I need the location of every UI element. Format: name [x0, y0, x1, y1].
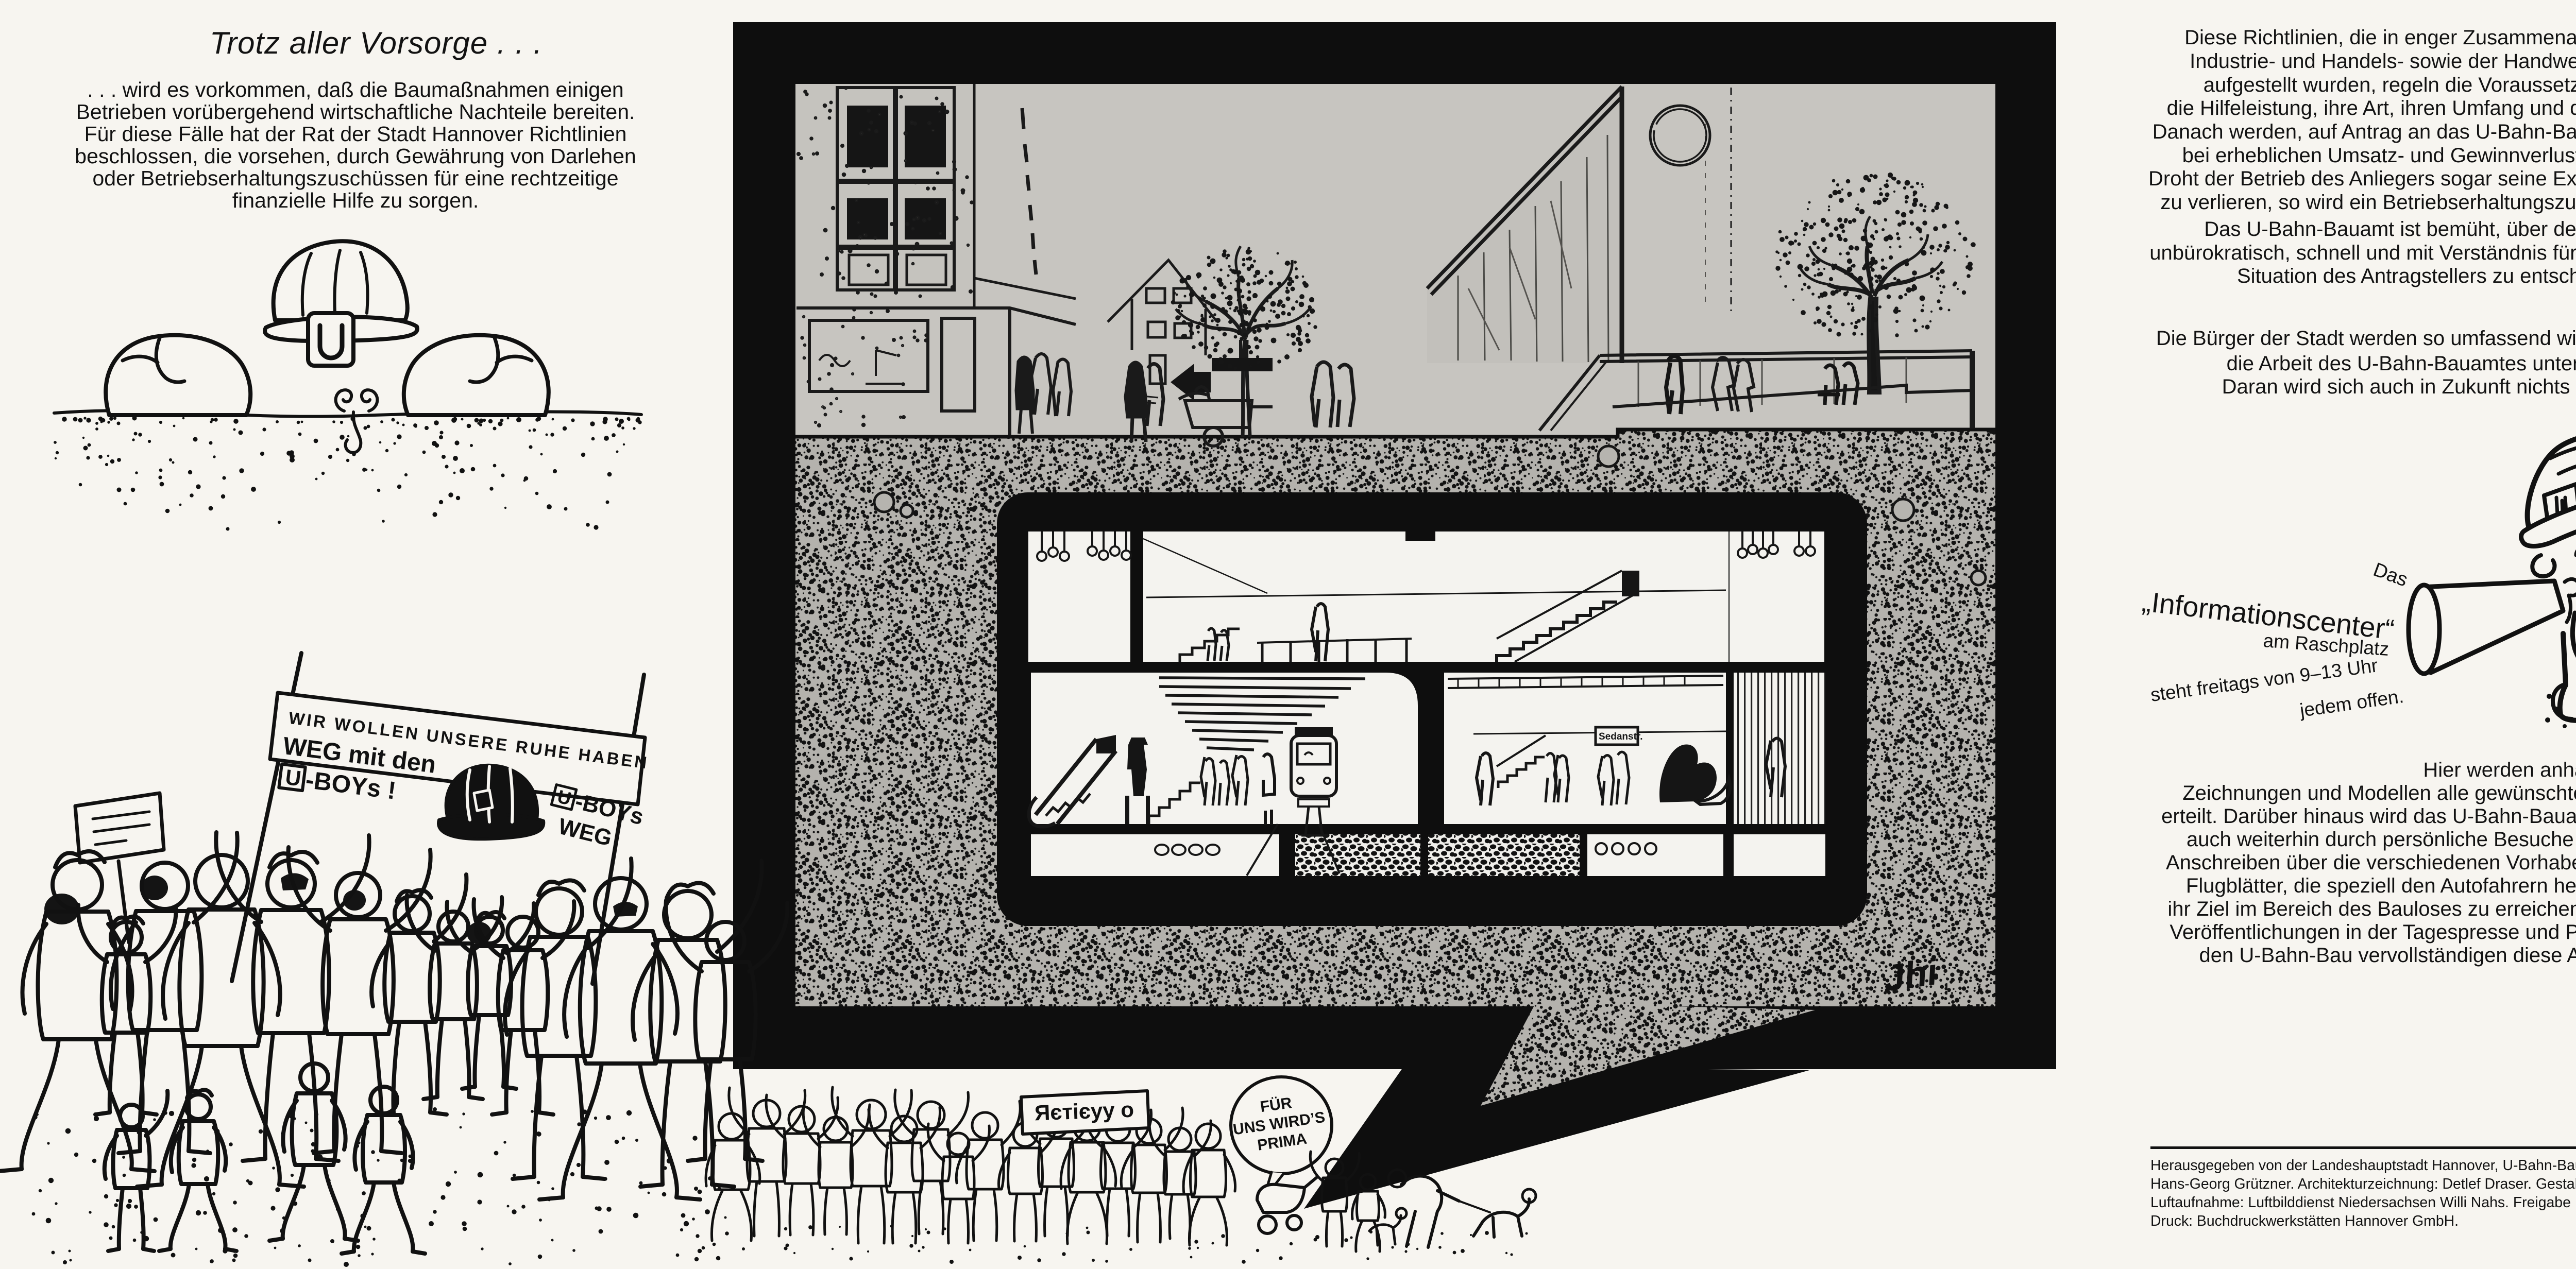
svg-text:erteilt. Darüber hinaus wird d: erteilt. Darüber hinaus wird das U-Bahn-…	[2161, 805, 2576, 828]
svg-text:Betrieben vorübergehend wirtsc: Betrieben vorübergehend wirtschaftliche …	[76, 100, 635, 124]
svg-text:beschlossen, die vorsehen, dur: beschlossen, die vorsehen, durch Gewähru…	[75, 144, 636, 168]
svg-text:unbürokratisch, schnell und mi: unbürokratisch, schnell und mit Verständ…	[2149, 242, 2576, 264]
svg-text:bei erheblichen Umsatz- und Ge: bei erheblichen Umsatz- und Gewinnverlus…	[2182, 144, 2576, 167]
svg-text:auch weiterhin durch persönlic: auch weiterhin durch persönliche Besuche…	[2187, 828, 2576, 851]
svg-text:Für diese Fälle hat der Rat de: Für diese Fälle hat der Rat der Stadt Ha…	[84, 122, 627, 146]
svg-text:Diese Richtlinien, die in enge: Diese Richtlinien, die in enger Zusammen…	[2184, 26, 2576, 49]
svg-text:Danach werden, auf Antrag an d: Danach werden, auf Antrag an das U-Bahn-…	[2153, 121, 2576, 143]
svg-text:finanzielle Hilfe zu sorgen.: finanzielle Hilfe zu sorgen.	[232, 188, 479, 212]
svg-text:aufgestellt wurden, regeln die: aufgestellt wurden, regeln die Vorausset…	[2204, 74, 2576, 96]
svg-text:Die Bürger der Stadt werden so: Die Bürger der Stadt werden so umfassend…	[2156, 327, 2576, 350]
svg-text:Das U-Bahn-Bauamt ist bemüht,: Das U-Bahn-Bauamt ist bemüht, über den A…	[2204, 218, 2576, 241]
svg-text:oder Betriebserhaltungszuschüs: oder Betriebserhaltungszuschüssen für ei…	[92, 166, 618, 190]
svg-text:Das: Das	[2370, 559, 2411, 591]
svg-text:Jhi: Jhi	[1881, 951, 1941, 1000]
svg-text:jedem offen.: jedem offen.	[2298, 685, 2405, 721]
svg-text:den U-Bahn-Bau vervollständige: den U-Bahn-Bau vervollständigen diese Au…	[2199, 944, 2576, 967]
svg-text:. . . wird es vorkommen, daß d: . . . wird es vorkommen, daß die Baumaßn…	[87, 78, 623, 101]
svg-text:U: U	[284, 765, 302, 791]
svg-text:ihr Ziel im Bereich des Baulos: ihr Ziel im Bereich des Bauloses zu erre…	[2167, 898, 2576, 920]
svg-text:Veröffentlichungen in der Tage: Veröffentlichungen in der Tagespresse un…	[2170, 921, 2576, 944]
svg-text:Sedanstr.: Sedanstr.	[1599, 731, 1643, 742]
svg-text:Herausgegeben von der Landesha: Herausgegeben von der Landeshauptstadt H…	[2150, 1157, 2576, 1174]
svg-text:Daran wird sich auch in Zukunf: Daran wird sich auch in Zukunft nichts ä…	[2222, 375, 2576, 398]
svg-text:die Hilfeleistung, ihre Art, i: die Hilfeleistung, ihre Art, ihren Umfan…	[2167, 97, 2576, 119]
svg-text:Trotz aller Vorsorge . . .: Trotz aller Vorsorge . . .	[210, 26, 543, 60]
svg-text:Hans-Georg Grützner. Architekt: Hans-Georg Grützner. Architekturzeichnun…	[2150, 1176, 2576, 1192]
svg-text:Droht der Betrieb des Anlieger: Droht der Betrieb des Anliegers sogar se…	[2148, 167, 2576, 190]
svg-text:Hier werden anhand von Plänen,: Hier werden anhand von Plänen,	[2423, 759, 2576, 781]
svg-text:zu verlieren, so wird ein Betr: zu verlieren, so wird ein Betriebserhalt…	[2160, 191, 2576, 214]
svg-text:Situation des Antragstellers z: Situation des Antragstellers zu entschei…	[2237, 265, 2576, 287]
svg-text:Яєтієуу о: Яєтієуу о	[1034, 1097, 1134, 1125]
svg-text:Anschreiben über die verschied: Anschreiben über die verschiedenen Vorha…	[2166, 851, 2576, 874]
svg-text:Industrie- und Handels- sowie: Industrie- und Handels- sowie der Handwe…	[2190, 50, 2576, 73]
svg-text:Flugblätter, die speziell den: Flugblätter, die speziell den Autofahrer…	[2186, 874, 2576, 897]
svg-text:Luftaufnahme: Luftbilddienst N: Luftaufnahme: Luftbilddienst Niedersachs…	[2150, 1194, 2576, 1211]
svg-text:die Arbeit des U-Bahn-Bauamtes: die Arbeit des U-Bahn-Bauamtes unterrich…	[2227, 352, 2576, 375]
svg-text:Druck: Buchdruckwerkstätten Ha: Druck: Buchdruckwerkstätten Hannover Gmb…	[2150, 1213, 2459, 1229]
svg-text:Zeichnungen und Modellen alle: Zeichnungen und Modellen alle gewünschte…	[2182, 782, 2576, 804]
